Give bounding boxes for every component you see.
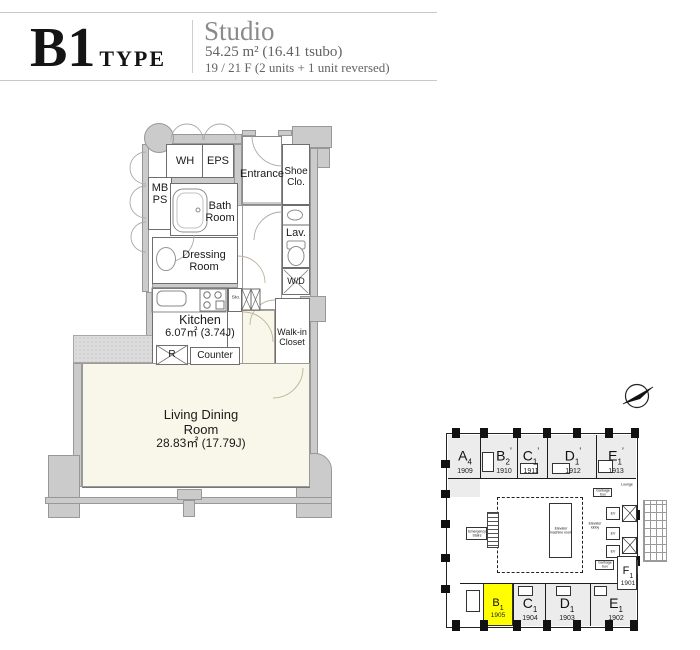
unit-label-e1-upper: E1’ 1913	[599, 447, 633, 475]
door-arc	[130, 186, 146, 218]
unit-letter: B	[492, 597, 499, 609]
unit-sub: 1	[533, 605, 537, 614]
elevator-car	[622, 537, 637, 554]
unit-letter: C	[523, 447, 533, 463]
unit-prime: ’	[510, 446, 512, 456]
unit-label-c1-upper: C1’ 1911	[514, 447, 548, 475]
unit-number: 1913	[599, 468, 633, 475]
unit-sub: 1	[570, 605, 574, 614]
kitchen-sink	[157, 291, 186, 306]
label-line: MB	[147, 182, 173, 194]
unit-letter: C	[523, 595, 533, 611]
label-line: Room	[198, 212, 242, 224]
label-living-area: 28.83㎡ (17.79J)	[125, 437, 277, 450]
door-arc	[252, 136, 282, 166]
label-bath-room: Bath Room	[198, 200, 242, 225]
label-shoe-closet: Shoe Clo.	[281, 166, 311, 188]
label-walk-in-closet: Walk-in Closet	[272, 327, 312, 347]
unit-label-d1-lower: D1 1903	[550, 596, 584, 622]
unit-prime: ’	[537, 446, 539, 456]
unit-letter: D	[560, 595, 570, 611]
unit-number: 1904	[513, 615, 547, 622]
label-line: PS	[147, 194, 173, 206]
unit-label-a4: A4 1909	[448, 447, 482, 475]
label-line: Bath	[198, 200, 242, 212]
door-arc	[254, 212, 282, 240]
unit-number: 1903	[550, 615, 584, 622]
unit-number: 1912	[556, 468, 590, 475]
label-storage: Sto.	[230, 295, 242, 300]
label-eps: EPS	[202, 155, 234, 167]
unit-sub: 4	[467, 458, 471, 467]
label-line: Dressing	[170, 249, 238, 261]
door-arc	[130, 152, 146, 184]
unit-prime: ’	[579, 446, 581, 456]
unit-sub: 1	[500, 605, 504, 612]
label-lavatory: Lav.	[281, 227, 311, 239]
plan-overlay	[0, 0, 700, 650]
unit-number: 1905	[483, 613, 513, 620]
label-line: Living Dining	[125, 408, 277, 423]
door-arc	[204, 124, 236, 140]
unit-sub: 1	[575, 458, 579, 467]
label-line: Clo.	[281, 177, 311, 188]
unit-number: 1911	[514, 468, 548, 475]
unit-number: 1909	[448, 468, 482, 475]
door-arc	[238, 256, 265, 283]
label-line: Walk-in	[272, 327, 312, 337]
lavatory-sink	[288, 210, 303, 220]
unit-label-d1-upper: D1’ 1912	[556, 447, 590, 475]
label-entrance: Entrance	[238, 168, 286, 180]
label-wh: WH	[168, 155, 202, 167]
unit-sub: 2	[505, 458, 509, 467]
unit-number: 1901	[618, 581, 638, 588]
unit-sub: 1	[629, 573, 633, 580]
unit-sub: 1	[533, 458, 537, 467]
label-mb-ps: MB PS	[147, 182, 173, 207]
elevator-car	[622, 505, 637, 522]
door-arc	[131, 222, 146, 252]
unit-label-f1: F1 1901	[618, 562, 638, 588]
door-arc	[171, 124, 203, 140]
floorplan-page: B1 TYPE Studio 54.25 m² (16.41 tsubo) 19…	[0, 0, 700, 650]
unit-sub: 1	[618, 605, 622, 614]
label-washer-dryer: W/D	[282, 276, 310, 286]
keyplan-elevator-cars	[622, 505, 637, 554]
toilet-bowl	[288, 247, 304, 266]
unit-label-c1-lower: C1 1904	[513, 596, 547, 622]
north-compass-icon	[623, 385, 653, 408]
label-refrigerator: R	[156, 349, 188, 360]
unit-label-e1-lower: E1 1902	[599, 596, 633, 622]
label-line: Room	[170, 261, 238, 273]
label-line: Shoe	[281, 166, 311, 177]
label-counter: Counter	[190, 350, 240, 361]
unit-label-b1-highlight: B1 1905	[483, 594, 513, 620]
unit-letter: D	[565, 447, 575, 463]
unit-number: 1902	[599, 615, 633, 622]
label-line: Room	[125, 423, 277, 438]
door-arc	[273, 368, 303, 398]
label-living-dining: Living Dining Room 28.83㎡ (17.79J)	[125, 408, 277, 451]
label-line: Closet	[272, 337, 312, 347]
stove	[200, 289, 226, 311]
label-dressing-room: Dressing Room	[170, 249, 238, 274]
unit-prime: ’	[622, 446, 624, 456]
label-kitchen-area: 6.07㎡ (3.74J)	[150, 327, 250, 339]
unit-sub: 1	[617, 458, 621, 467]
label-kitchen: Kitchen	[160, 313, 240, 327]
